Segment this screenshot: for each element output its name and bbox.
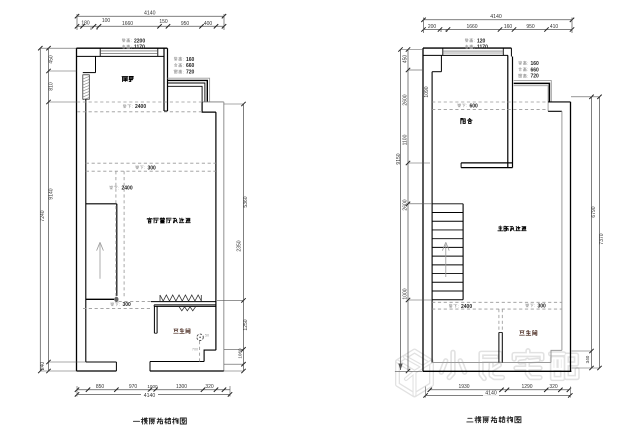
svg-text:200: 200 bbox=[428, 24, 437, 30]
svg-text:1100: 1100 bbox=[402, 134, 408, 145]
svg-text:340: 340 bbox=[585, 355, 590, 363]
svg-text::: : bbox=[183, 69, 184, 74]
svg-text:4140: 4140 bbox=[144, 10, 156, 16]
svg-text:4140: 4140 bbox=[144, 393, 156, 399]
svg-text:1000: 1000 bbox=[147, 384, 158, 389]
svg-text:2600: 2600 bbox=[402, 199, 408, 210]
svg-text:2200: 2200 bbox=[134, 38, 145, 44]
svg-text:450: 450 bbox=[402, 55, 408, 64]
svg-text:400: 400 bbox=[204, 21, 213, 27]
svg-text:320: 320 bbox=[205, 384, 214, 390]
svg-text:1000: 1000 bbox=[402, 288, 408, 299]
svg-text:720: 720 bbox=[531, 74, 540, 80]
svg-text::: : bbox=[474, 44, 475, 49]
svg-text:720: 720 bbox=[186, 70, 195, 76]
svg-text:0: 0 bbox=[446, 29, 448, 33]
svg-text:2400: 2400 bbox=[122, 186, 133, 192]
svg-text:1060: 1060 bbox=[237, 348, 242, 359]
svg-text:0: 0 bbox=[440, 29, 442, 33]
svg-text:4140: 4140 bbox=[485, 391, 497, 397]
svg-text:160: 160 bbox=[504, 24, 513, 30]
svg-text:7370: 7370 bbox=[599, 233, 605, 244]
svg-text:660: 660 bbox=[531, 67, 540, 73]
svg-text::: : bbox=[527, 67, 528, 72]
svg-text:180: 180 bbox=[81, 21, 90, 27]
svg-text:1170: 1170 bbox=[477, 45, 488, 51]
svg-text:970: 970 bbox=[129, 384, 138, 390]
svg-text:2350: 2350 bbox=[236, 240, 242, 251]
svg-text::: : bbox=[466, 103, 467, 108]
svg-text:5360: 5360 bbox=[243, 196, 249, 207]
svg-text:100: 100 bbox=[102, 18, 111, 24]
svg-text:1300: 1300 bbox=[176, 384, 187, 390]
svg-text:850: 850 bbox=[96, 384, 105, 390]
svg-text:4140: 4140 bbox=[490, 14, 502, 20]
svg-text:2400: 2400 bbox=[135, 104, 146, 110]
svg-text::: : bbox=[527, 61, 528, 66]
svg-text::: : bbox=[183, 57, 184, 62]
svg-text:600: 600 bbox=[470, 103, 479, 109]
svg-text:0: 0 bbox=[90, 27, 92, 31]
svg-text:9140: 9140 bbox=[48, 188, 54, 199]
svg-text:9150: 9150 bbox=[396, 153, 402, 164]
svg-text:1930: 1930 bbox=[458, 384, 469, 390]
svg-text:50: 50 bbox=[205, 334, 209, 338]
svg-text:950: 950 bbox=[526, 24, 535, 30]
svg-text::: : bbox=[527, 74, 528, 79]
svg-text::: : bbox=[118, 185, 119, 190]
svg-text:7240: 7240 bbox=[40, 210, 46, 221]
svg-text:160: 160 bbox=[531, 61, 540, 67]
svg-text:320: 320 bbox=[549, 384, 558, 390]
svg-text::: : bbox=[534, 303, 535, 308]
svg-text:810: 810 bbox=[48, 82, 54, 91]
svg-text:660: 660 bbox=[186, 63, 195, 69]
svg-text:1170: 1170 bbox=[134, 45, 145, 51]
svg-text:6790: 6790 bbox=[591, 206, 597, 217]
svg-text:1090: 1090 bbox=[424, 86, 430, 97]
svg-text:300: 300 bbox=[538, 303, 547, 309]
svg-text::: : bbox=[183, 63, 184, 68]
svg-text:410: 410 bbox=[550, 24, 559, 30]
svg-text:1290: 1290 bbox=[521, 384, 532, 390]
svg-text:300: 300 bbox=[123, 302, 132, 308]
svg-text:950: 950 bbox=[181, 21, 190, 27]
svg-text:1660: 1660 bbox=[122, 21, 133, 27]
svg-text:150: 150 bbox=[159, 19, 168, 25]
svg-text::: : bbox=[474, 38, 475, 43]
svg-text:2400: 2400 bbox=[461, 304, 472, 310]
svg-text::: : bbox=[458, 304, 459, 309]
svg-text:1250: 1250 bbox=[243, 319, 249, 330]
svg-text:160: 160 bbox=[186, 57, 195, 63]
svg-text::: : bbox=[131, 44, 132, 49]
svg-text:700: 700 bbox=[192, 348, 198, 352]
svg-text:240: 240 bbox=[40, 362, 46, 371]
svg-text:2600: 2600 bbox=[402, 94, 408, 105]
svg-text:450: 450 bbox=[48, 55, 54, 64]
svg-text::: : bbox=[132, 104, 133, 109]
svg-text:300: 300 bbox=[148, 165, 157, 171]
svg-text:0: 0 bbox=[96, 27, 98, 31]
svg-text:1660: 1660 bbox=[466, 24, 477, 30]
svg-text::: : bbox=[119, 302, 120, 307]
svg-text:120: 120 bbox=[477, 38, 486, 44]
svg-text::: : bbox=[144, 165, 145, 170]
svg-text::: : bbox=[131, 38, 132, 43]
